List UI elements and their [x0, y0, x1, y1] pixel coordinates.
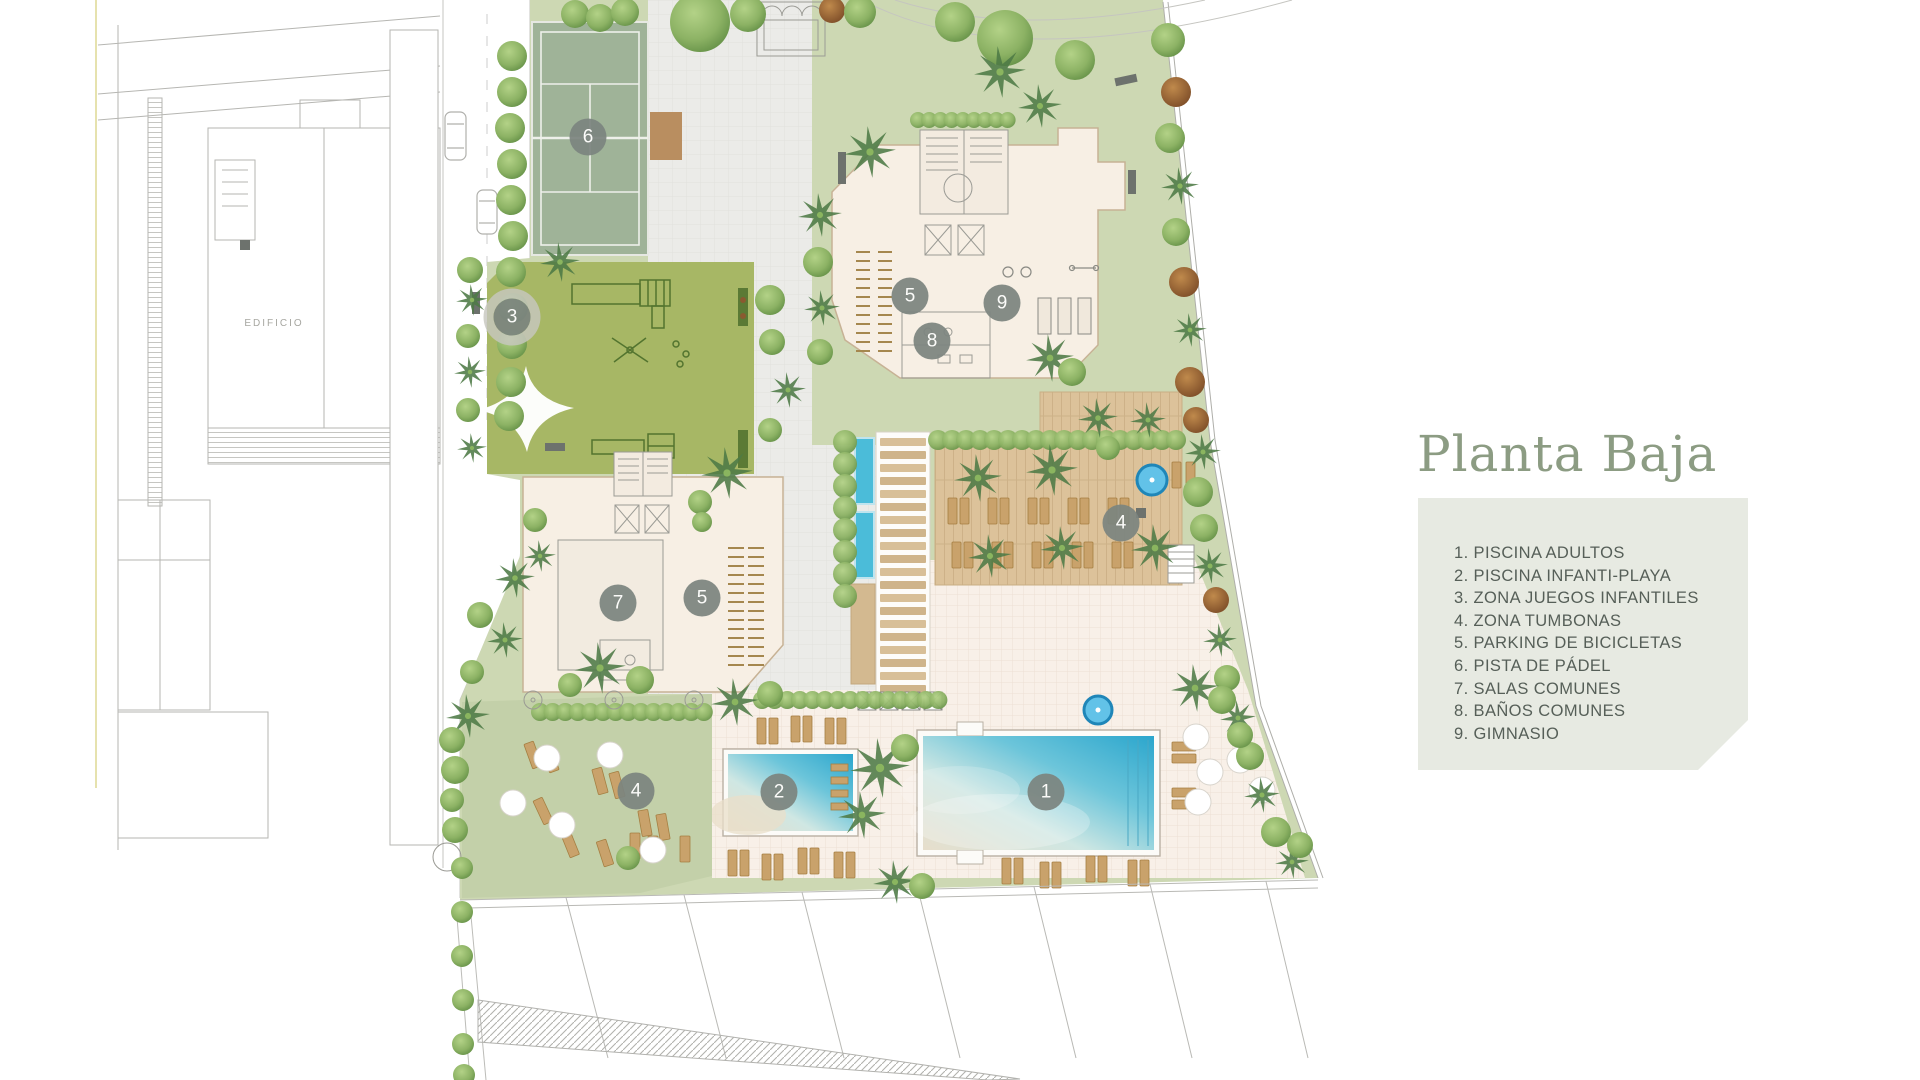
legend-item: 3. ZONA JUEGOS INFANTILES [1454, 587, 1748, 610]
car [445, 112, 497, 234]
map-marker: 7 [600, 585, 637, 622]
lawn-tumbonas [462, 694, 712, 898]
page-title: Planta Baja [1417, 425, 1717, 483]
south-parcels [460, 880, 1318, 1080]
legend-item: 1. PISCINA ADULTOS [1454, 542, 1748, 565]
map-marker: 9 [984, 285, 1021, 322]
boardwalk [851, 432, 942, 710]
site-plan-page: EDIFICIO 63598754421 Planta Baja 1. PISC… [0, 0, 1920, 1080]
legend-item: 7. SALAS COMUNES [1454, 678, 1748, 701]
neighbor-building [96, 0, 440, 850]
map-marker: 3 [494, 299, 531, 336]
legend-item: 9. GIMNASIO [1454, 723, 1748, 746]
map-marker: 2 [761, 774, 798, 811]
map-marker: 5 [892, 278, 929, 315]
legend-item: 2. PISCINA INFANTI-PLAYA [1454, 565, 1748, 588]
neighbor-building-label: EDIFICIO [212, 318, 336, 329]
info-panel: Planta Baja 1. PISCINA ADULTOS2. PISCINA… [1412, 0, 1920, 1080]
legend-list: 1. PISCINA ADULTOS2. PISCINA INFANTI-PLA… [1454, 542, 1748, 745]
building-north [832, 128, 1125, 378]
map-marker: 5 [684, 580, 721, 617]
map-marker: 4 [618, 773, 655, 810]
legend-item: 5. PARKING DE BICICLETAS [1454, 632, 1748, 655]
building-south [523, 443, 783, 692]
map-marker: 6 [570, 119, 607, 156]
map-marker: 4 [1103, 505, 1140, 542]
map-marker: 1 [1028, 774, 1065, 811]
playground [478, 262, 754, 474]
map-marker: 8 [914, 323, 951, 360]
legend-box: 1. PISCINA ADULTOS2. PISCINA INFANTI-PLA… [1418, 498, 1748, 770]
legend-item: 6. PISTA DE PÁDEL [1454, 655, 1748, 678]
legend-item: 8. BAÑOS COMUNES [1454, 700, 1748, 723]
site-plan-drawing [0, 0, 1410, 1080]
legend-item: 4. ZONA TUMBONAS [1454, 610, 1748, 633]
